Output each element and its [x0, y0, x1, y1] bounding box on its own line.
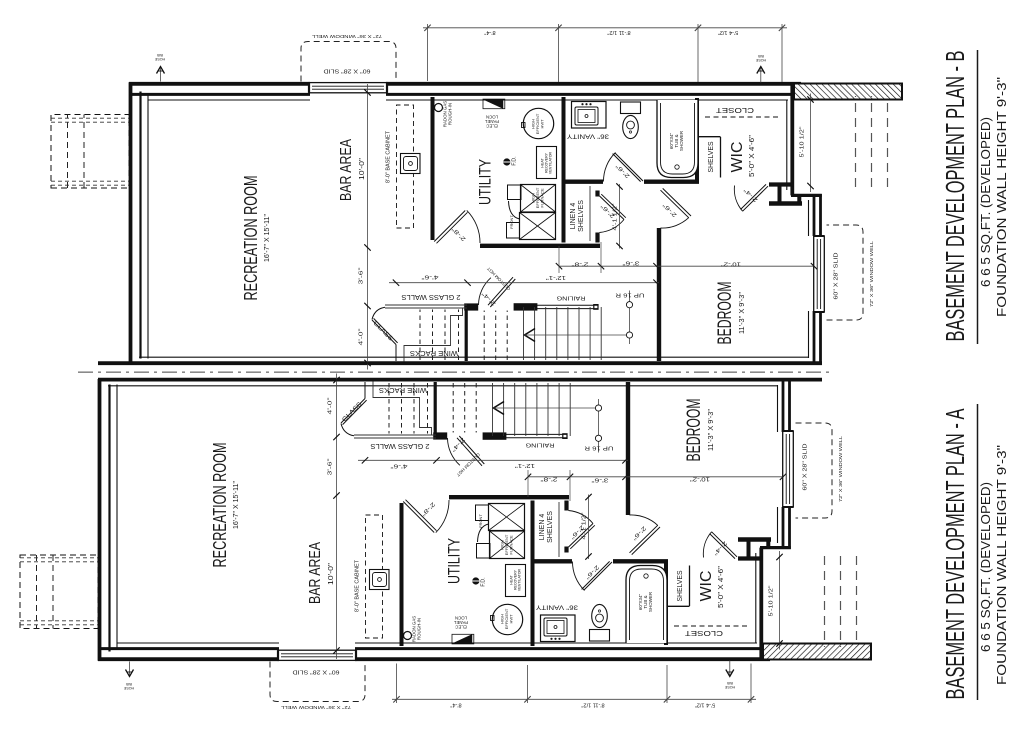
- svg-text:4'-6": 4'-6": [421, 274, 438, 280]
- svg-text:FOUNDATION WALL HEIGHT 9'-3": FOUNDATION WALL HEIGHT 9'-3": [994, 445, 1009, 685]
- svg-text:8'-4": 8'-4": [450, 701, 461, 707]
- svg-text:LINEN 4SHELVES: LINEN 4SHELVES: [539, 511, 554, 543]
- svg-text:4'-0": 4'-0": [327, 397, 333, 414]
- svg-text:F.D.: F.D.: [480, 577, 486, 586]
- svg-text:12'-1": 12'-1": [546, 274, 566, 280]
- svg-text:5'-10 1/2": 5'-10 1/2": [799, 126, 805, 157]
- svg-text:60" X 28" SLID: 60" X 28" SLID: [324, 67, 371, 73]
- svg-text:3'-6": 3'-6": [358, 267, 364, 284]
- svg-text:11'-3" X 9'-3": 11'-3" X 9'-3": [739, 291, 746, 334]
- svg-text:3'-6": 3'-6": [591, 477, 608, 483]
- svg-text:LINEN 4SHELVES: LINEN 4SHELVES: [570, 200, 585, 232]
- svg-text:2 GLASS WALLS: 2 GLASS WALLS: [370, 442, 429, 449]
- svg-text:SHELVES: SHELVES: [677, 570, 684, 601]
- svg-text:72" X 36" WINDOW WELL: 72" X 36" WINDOW WELL: [869, 240, 874, 307]
- svg-text:4'-6": 4'-6": [390, 463, 407, 469]
- svg-text:2 GLASS WALLS: 2 GLASS WALLS: [401, 293, 460, 300]
- svg-text:4'-0": 4'-0": [358, 328, 364, 345]
- svg-text:RADON GASROUGH-IN: RADON GASROUGH-IN: [443, 101, 453, 127]
- svg-text:2'-8": 2'-8": [571, 261, 588, 267]
- svg-text:10'-2": 10'-2": [690, 476, 710, 482]
- svg-text:5'-0" X 4'-6": 5'-0" X 4'-6": [718, 565, 725, 608]
- svg-text:36" VANITY: 36" VANITY: [535, 603, 578, 610]
- svg-text:WINE RACKS: WINE RACKS: [379, 386, 427, 393]
- svg-text:FOUNDATION WALL HEIGHT 9'-3": FOUNDATION WALL HEIGHT 9'-3": [994, 77, 1009, 317]
- svg-text:8'-4": 8'-4": [484, 29, 495, 35]
- svg-text:RAILING: RAILING: [556, 294, 586, 300]
- svg-text:WIC: WIC: [698, 571, 715, 602]
- svg-text:10'-2": 10'-2": [721, 261, 741, 267]
- svg-text:4'-1 1/2": 4'-1 1/2": [612, 203, 618, 230]
- svg-text:10'-0": 10'-0": [359, 157, 366, 180]
- svg-text:BASEMENT DEVELOPMENT PLAN - A: BASEMENT DEVELOPMENT PLAN - A: [940, 408, 970, 699]
- svg-text:12'-1": 12'-1": [515, 462, 535, 468]
- svg-text:SHELVES: SHELVES: [708, 141, 715, 172]
- svg-text:5'-0" X 4'-6": 5'-0" X 4'-6": [749, 134, 756, 177]
- svg-text:BASEMENT DEVELOPMENT PLAN - B: BASEMENT DEVELOPMENT PLAN - B: [940, 51, 970, 342]
- svg-text:16'-7" X 15'-11": 16'-7" X 15'-11": [264, 213, 271, 262]
- svg-text:ELECPANELLOCN: ELECPANELLOCN: [453, 615, 468, 629]
- svg-text:8'-0" BASE CABINET: 8'-0" BASE CABINET: [354, 559, 360, 612]
- svg-text:WIC: WIC: [729, 142, 746, 173]
- svg-text:BAR AREA: BAR AREA: [307, 542, 324, 604]
- svg-text:6 6 5 SQ.FT. (DEVELOPED): 6 6 5 SQ.FT. (DEVELOPED): [978, 482, 993, 652]
- svg-text:BEDROOM: BEDROOM: [714, 282, 736, 345]
- svg-text:CLOSET: CLOSET: [684, 629, 723, 638]
- svg-text:RADON GASROUGH-IN: RADON GASROUGH-IN: [412, 616, 422, 642]
- svg-text:3'-6": 3'-6": [622, 260, 639, 266]
- svg-text:2'-8": 2'-8": [540, 476, 557, 482]
- svg-text:UTILITY: UTILITY: [444, 538, 463, 584]
- svg-text:60" X 28" SLID: 60" X 28" SLID: [803, 444, 809, 491]
- svg-text:F.D.: F.D.: [511, 156, 517, 165]
- svg-text:CLOSET: CLOSET: [715, 106, 754, 115]
- svg-text:FRONT: FRONT: [478, 514, 483, 528]
- svg-text:RECREATION ROOM: RECREATION ROOM: [210, 443, 230, 568]
- svg-text:8'-11 1/2": 8'-11 1/2": [581, 701, 604, 707]
- svg-text:5'-4 1/2": 5'-4 1/2": [695, 701, 715, 707]
- svg-text:60" X 28" SLID: 60" X 28" SLID: [834, 253, 840, 300]
- svg-text:ELECPANELLOCN: ELECPANELLOCN: [484, 114, 499, 128]
- svg-text:FRONT: FRONT: [509, 215, 514, 229]
- svg-text:UTILITY: UTILITY: [475, 159, 494, 205]
- svg-text:60" X 28" SLID: 60" X 28" SLID: [293, 668, 340, 674]
- svg-text:BAR AREA: BAR AREA: [338, 139, 355, 201]
- svg-text:6 6 5 SQ.FT. (DEVELOPED): 6 6 5 SQ.FT. (DEVELOPED): [978, 117, 993, 287]
- svg-text:RECREATION ROOM: RECREATION ROOM: [241, 176, 261, 301]
- svg-text:8'-11 1/2": 8'-11 1/2": [607, 29, 630, 35]
- svg-text:72" X 36" WINDOW WELL: 72" X 36" WINDOW WELL: [311, 34, 382, 39]
- svg-text:UP 16 R: UP 16 R: [616, 291, 645, 297]
- svg-text:72" X 36" WINDOW WELL: 72" X 36" WINDOW WELL: [838, 435, 843, 502]
- svg-text:WINE RACKS: WINE RACKS: [410, 349, 458, 356]
- svg-text:8'-0" BASE CABINET: 8'-0" BASE CABINET: [385, 130, 391, 183]
- svg-text:4'-1 1/2": 4'-1 1/2": [581, 512, 587, 539]
- svg-text:3'-6": 3'-6": [327, 458, 333, 475]
- svg-text:5'-10 1/2": 5'-10 1/2": [768, 585, 774, 616]
- svg-text:BEDROOM: BEDROOM: [683, 399, 705, 462]
- svg-text:5'-4 1/2": 5'-4 1/2": [718, 29, 738, 35]
- svg-text:72" X 36" WINDOW WELL: 72" X 36" WINDOW WELL: [280, 705, 351, 710]
- svg-text:10'-0": 10'-0": [328, 562, 335, 585]
- svg-text:16'-7" X 15'-11": 16'-7" X 15'-11": [233, 480, 240, 529]
- svg-text:UP 16 R: UP 16 R: [585, 444, 614, 450]
- svg-text:RAILING: RAILING: [525, 441, 555, 447]
- svg-text:11'-3" X 9'-3": 11'-3" X 9'-3": [708, 408, 715, 451]
- svg-text:36" VANITY: 36" VANITY: [566, 132, 609, 139]
